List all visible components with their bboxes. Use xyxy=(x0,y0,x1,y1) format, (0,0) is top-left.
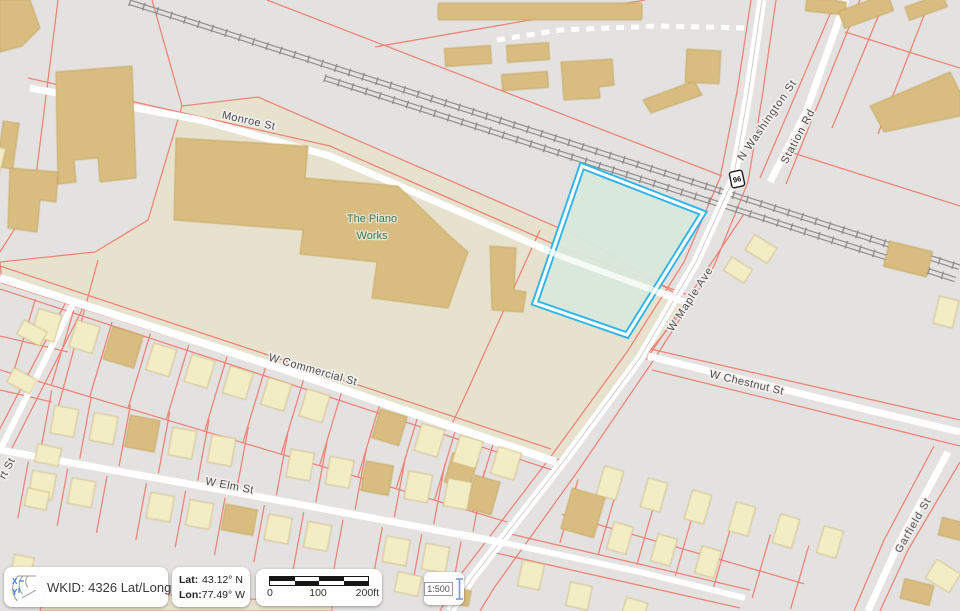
coordinate-system-icon: X Y xyxy=(12,574,36,601)
map-canvas[interactable]: 96 Monroe St N Washington St Station Rd … xyxy=(0,0,960,611)
scale-bar-graphic xyxy=(269,576,369,586)
map-application-window: 96 Monroe St N Washington St Station Rd … xyxy=(0,0,960,611)
projection-control[interactable]: X Y WKID: 4326 Lat/Long ▲ xyxy=(4,567,168,607)
text-cursor-icon xyxy=(455,578,464,600)
svg-text:X: X xyxy=(12,577,18,586)
place-label-piano-works-line2: Works xyxy=(357,230,388,242)
scale-tick-100: 100 xyxy=(309,587,327,599)
scale-tick-200ft: 200ft xyxy=(356,587,379,599)
scale-tick-0: 0 xyxy=(267,587,273,599)
wkid-label: WKID: 4326 Lat/Long xyxy=(47,580,171,595)
cursor-coordinates: Lat: 43.12° N Lon: 77.49° W xyxy=(172,567,250,607)
svg-text:Y: Y xyxy=(12,588,18,597)
lat-value: 43.12° N xyxy=(202,573,243,587)
lon-value: 77.49° W xyxy=(202,588,245,602)
place-label-piano-works-line1: The Piano xyxy=(347,213,397,225)
scale-ratio-input[interactable]: 1:500 xyxy=(424,572,464,605)
lon-label: Lon: xyxy=(179,588,202,602)
scale-bar: 0 100 200ft xyxy=(256,569,382,606)
scale-ratio-value[interactable]: 1:500 xyxy=(424,582,453,596)
route-shield: 96 xyxy=(729,170,745,188)
lat-label: Lat: xyxy=(179,573,202,587)
